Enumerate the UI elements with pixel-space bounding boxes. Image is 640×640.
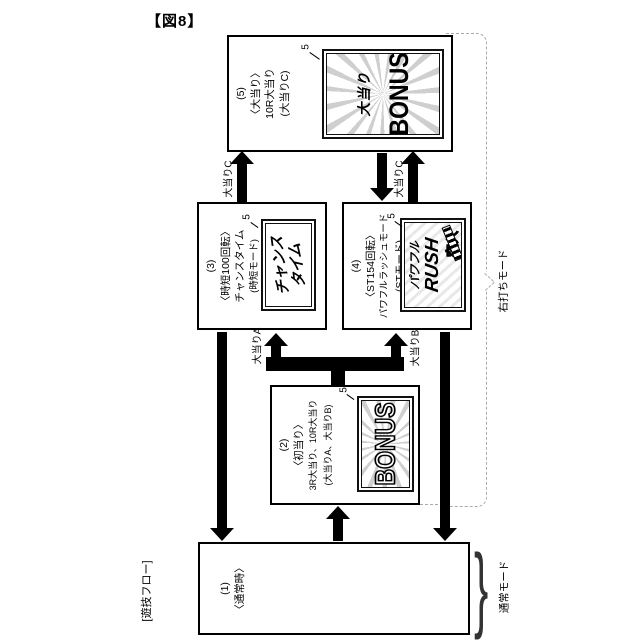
state-line: パワフルラッシュモード (378, 204, 393, 328)
screen-powerful-text: パワフル (406, 240, 423, 291)
state-line: 〈初当り〉 (292, 387, 307, 503)
state-id: (4) (349, 204, 364, 328)
arrow-label-jackpot-c-left: 大当りC (220, 160, 235, 197)
state-line: チャンスタイム (233, 204, 248, 328)
arrow-2-to-4-neck (391, 345, 401, 357)
state-box-3: (3) 〈時短100回転〉 チャンスタイム (時短モード) チャンス タイム (197, 202, 327, 330)
arrow-label-jackpot-c-right: 大当りC (391, 160, 406, 197)
ref-numeral-5: 5 (242, 214, 253, 220)
flow-label: [遊技フロー] (138, 560, 154, 621)
arrow-3-to-5-shaft (237, 163, 247, 202)
ref-numeral-5: 5 (387, 213, 398, 219)
fork-arrow-stem (331, 370, 345, 385)
state-id: (2) (277, 387, 292, 503)
arrow-label-jackpot-b: 大当りB (407, 330, 422, 367)
normal-mode-brace: } (474, 541, 488, 636)
state-line: 〈ST154回転〉 (364, 204, 379, 328)
state-line: (大当りA、大当りB) (321, 387, 336, 503)
arrow-2-to-3-neck (271, 345, 281, 357)
right-mode-label: 右打ちモード (496, 250, 511, 313)
display-screen: 大当り BONUS (322, 49, 444, 139)
arrow-4-to-1-head (433, 528, 457, 541)
state-line: 3R大当り、10R大当り (306, 387, 321, 503)
display-screen: チャンス タイム (261, 219, 316, 311)
state-box-1: (1) 〈通常時〉 (198, 542, 470, 635)
display-screen: BONUS (357, 396, 414, 492)
fork-arrow-bar (266, 357, 404, 371)
arrow-4-to-5-shaft (408, 163, 418, 202)
state-id: (1) (218, 544, 233, 633)
arrow-3-to-1-head (210, 528, 234, 541)
display-screen: パワフル RUSH 突入 (400, 218, 466, 312)
state-box-5: (5) 〈大当り〉 10R大当り (大当りC) 大当り BONUS (227, 35, 453, 152)
state-line: 〈大当り〉 (249, 37, 264, 150)
state-id: (5) (234, 37, 249, 150)
state-box-4: (4) 〈ST154回転〉 パワフルラッシュモード (STモード) パワフル R… (342, 202, 472, 330)
screen-jackpot-text: 大当り (354, 72, 374, 117)
arrow-4-to-1-shaft (440, 332, 450, 529)
arrow-1-to-2-shaft (333, 518, 343, 541)
screen-bonus-text: BONUS (383, 53, 414, 135)
figure-label: 【図8】 (146, 10, 203, 31)
arrow-label-jackpot-a: 大当りA (249, 328, 264, 365)
normal-mode-label: 通常モード (497, 561, 512, 614)
state-line: 〈時短100回転〉 (219, 204, 234, 328)
state-id: (3) (204, 204, 219, 328)
ref-numeral-5: 5 (301, 44, 312, 50)
screen-bonus-text: BONUS (369, 402, 401, 485)
arrow-5-to-4-shaft (377, 153, 387, 189)
arrow-3-to-1-shaft (217, 332, 227, 529)
state-line: 〈通常時〉 (233, 544, 248, 633)
state-box-2: (2) 〈初当り〉 3R大当り、10R大当り (大当りA、大当りB) BONUS (270, 385, 420, 505)
screen-rush-text: RUSH (423, 237, 442, 294)
patent-figure: 【図8】 右打ちモード } 通常モード [遊技フロー] (5) 〈大当り〉 10… (0, 0, 640, 640)
ref-numeral-5: 5 (339, 387, 350, 393)
state-line: 10R大当り (263, 37, 278, 150)
state-line: (大当りC) (278, 37, 293, 150)
